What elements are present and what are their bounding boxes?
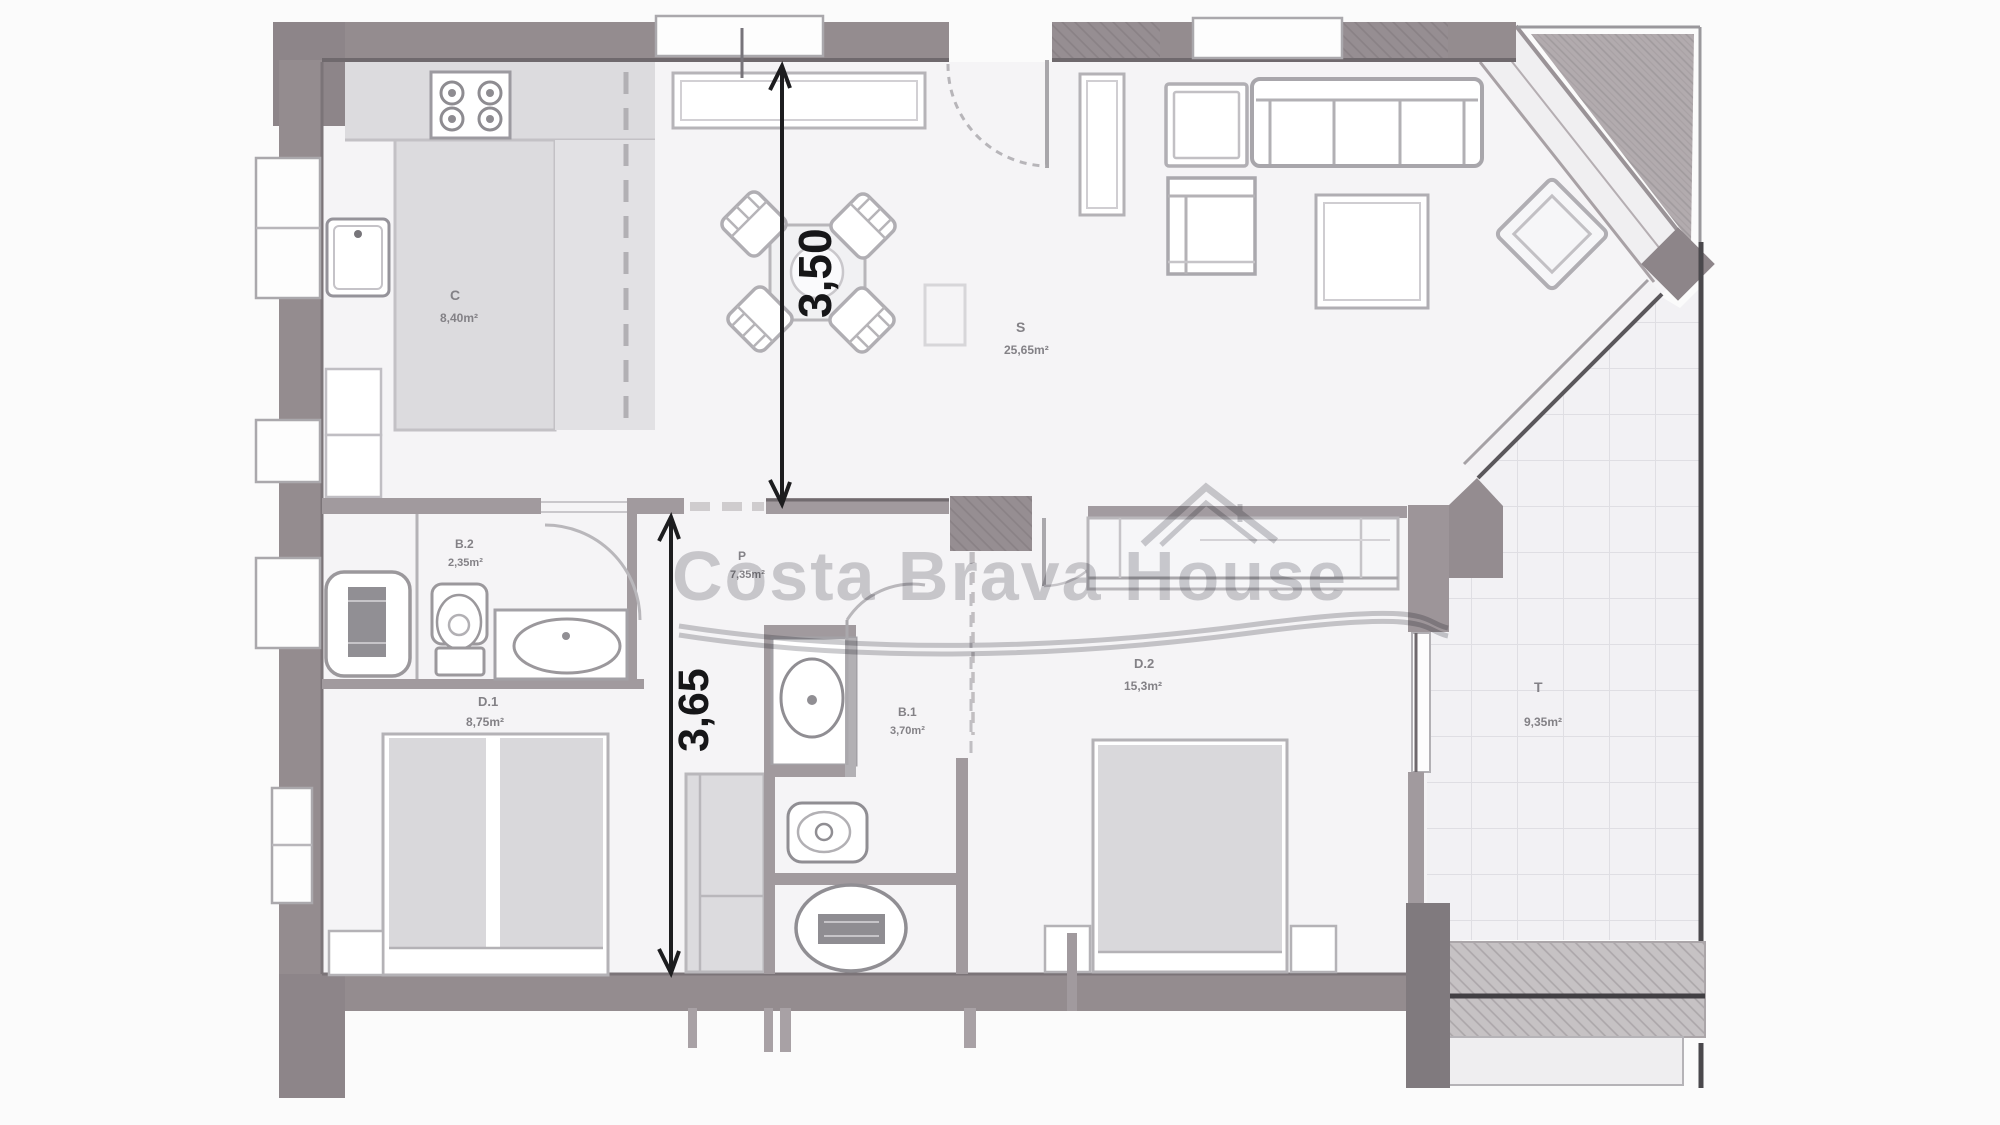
svg-text:25,65m²: 25,65m² — [1004, 343, 1049, 357]
svg-text:B.2: B.2 — [455, 537, 474, 551]
svg-text:Costa Brava House: Costa Brava House — [672, 537, 1348, 615]
svg-text:S: S — [1016, 319, 1025, 335]
svg-text:15,3m²: 15,3m² — [1124, 679, 1162, 693]
svg-text:B.1: B.1 — [898, 705, 917, 719]
svg-text:D.1: D.1 — [478, 694, 498, 709]
svg-text:D.2: D.2 — [1134, 656, 1154, 671]
svg-text:8,40m²: 8,40m² — [440, 311, 478, 325]
svg-text:T: T — [1534, 679, 1543, 695]
svg-text:8,75m²: 8,75m² — [466, 715, 504, 729]
svg-text:3,50: 3,50 — [789, 228, 841, 318]
svg-text:3,70m²: 3,70m² — [890, 725, 925, 737]
svg-text:3,65: 3,65 — [670, 668, 718, 752]
svg-text:C: C — [450, 287, 460, 303]
svg-text:2,35m²: 2,35m² — [448, 557, 483, 569]
svg-text:9,35m²: 9,35m² — [1524, 715, 1562, 729]
